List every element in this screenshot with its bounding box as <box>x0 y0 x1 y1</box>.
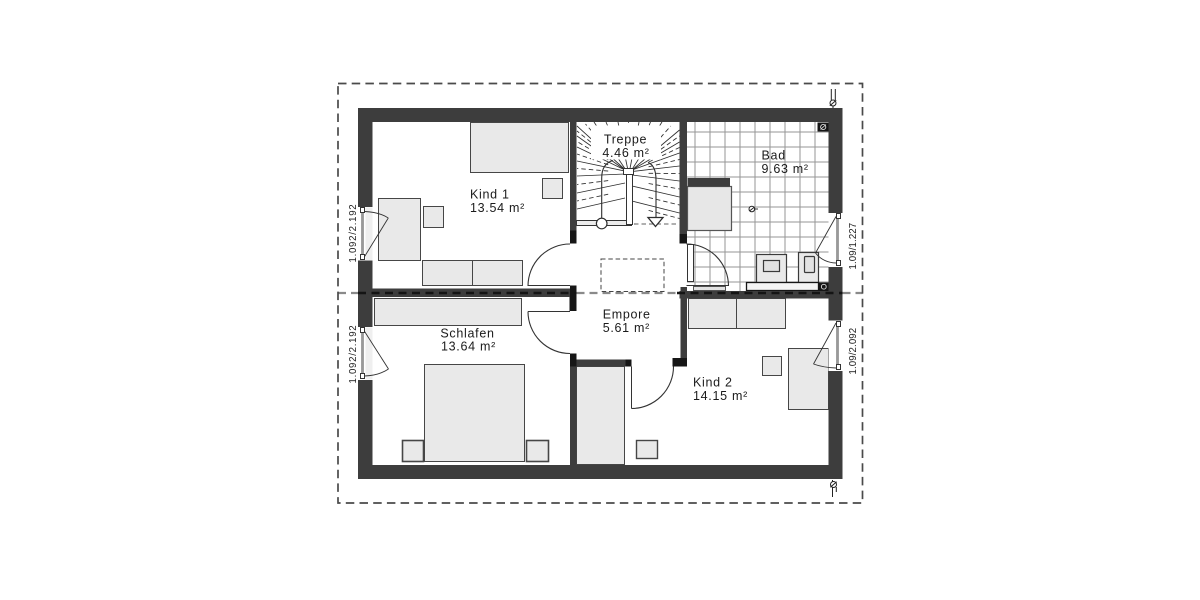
svg-text:1.09/1.227: 1.09/1.227 <box>848 223 859 270</box>
svg-text:Kind 1: Kind 1 <box>470 188 510 202</box>
svg-text:Schlafen: Schlafen <box>440 326 494 340</box>
svg-text:4.46 m²: 4.46 m² <box>602 146 649 160</box>
svg-text:13.64 m²: 13.64 m² <box>441 340 496 354</box>
svg-text:Treppe: Treppe <box>604 133 647 147</box>
svg-text:14.15 m²: 14.15 m² <box>693 389 748 403</box>
svg-text:13.54 m²: 13.54 m² <box>470 201 525 215</box>
svg-text:Bad: Bad <box>762 149 786 163</box>
svg-text:1.092/2.192: 1.092/2.192 <box>348 204 359 263</box>
svg-text:5.61 m²: 5.61 m² <box>603 321 650 335</box>
svg-text:1.092/2.192: 1.092/2.192 <box>348 325 359 384</box>
svg-text:1.09/2.092: 1.09/2.092 <box>848 328 859 375</box>
svg-text:9.63 m²: 9.63 m² <box>762 162 809 176</box>
svg-text:Kind 2: Kind 2 <box>693 376 733 390</box>
svg-text:Empore: Empore <box>603 308 651 322</box>
